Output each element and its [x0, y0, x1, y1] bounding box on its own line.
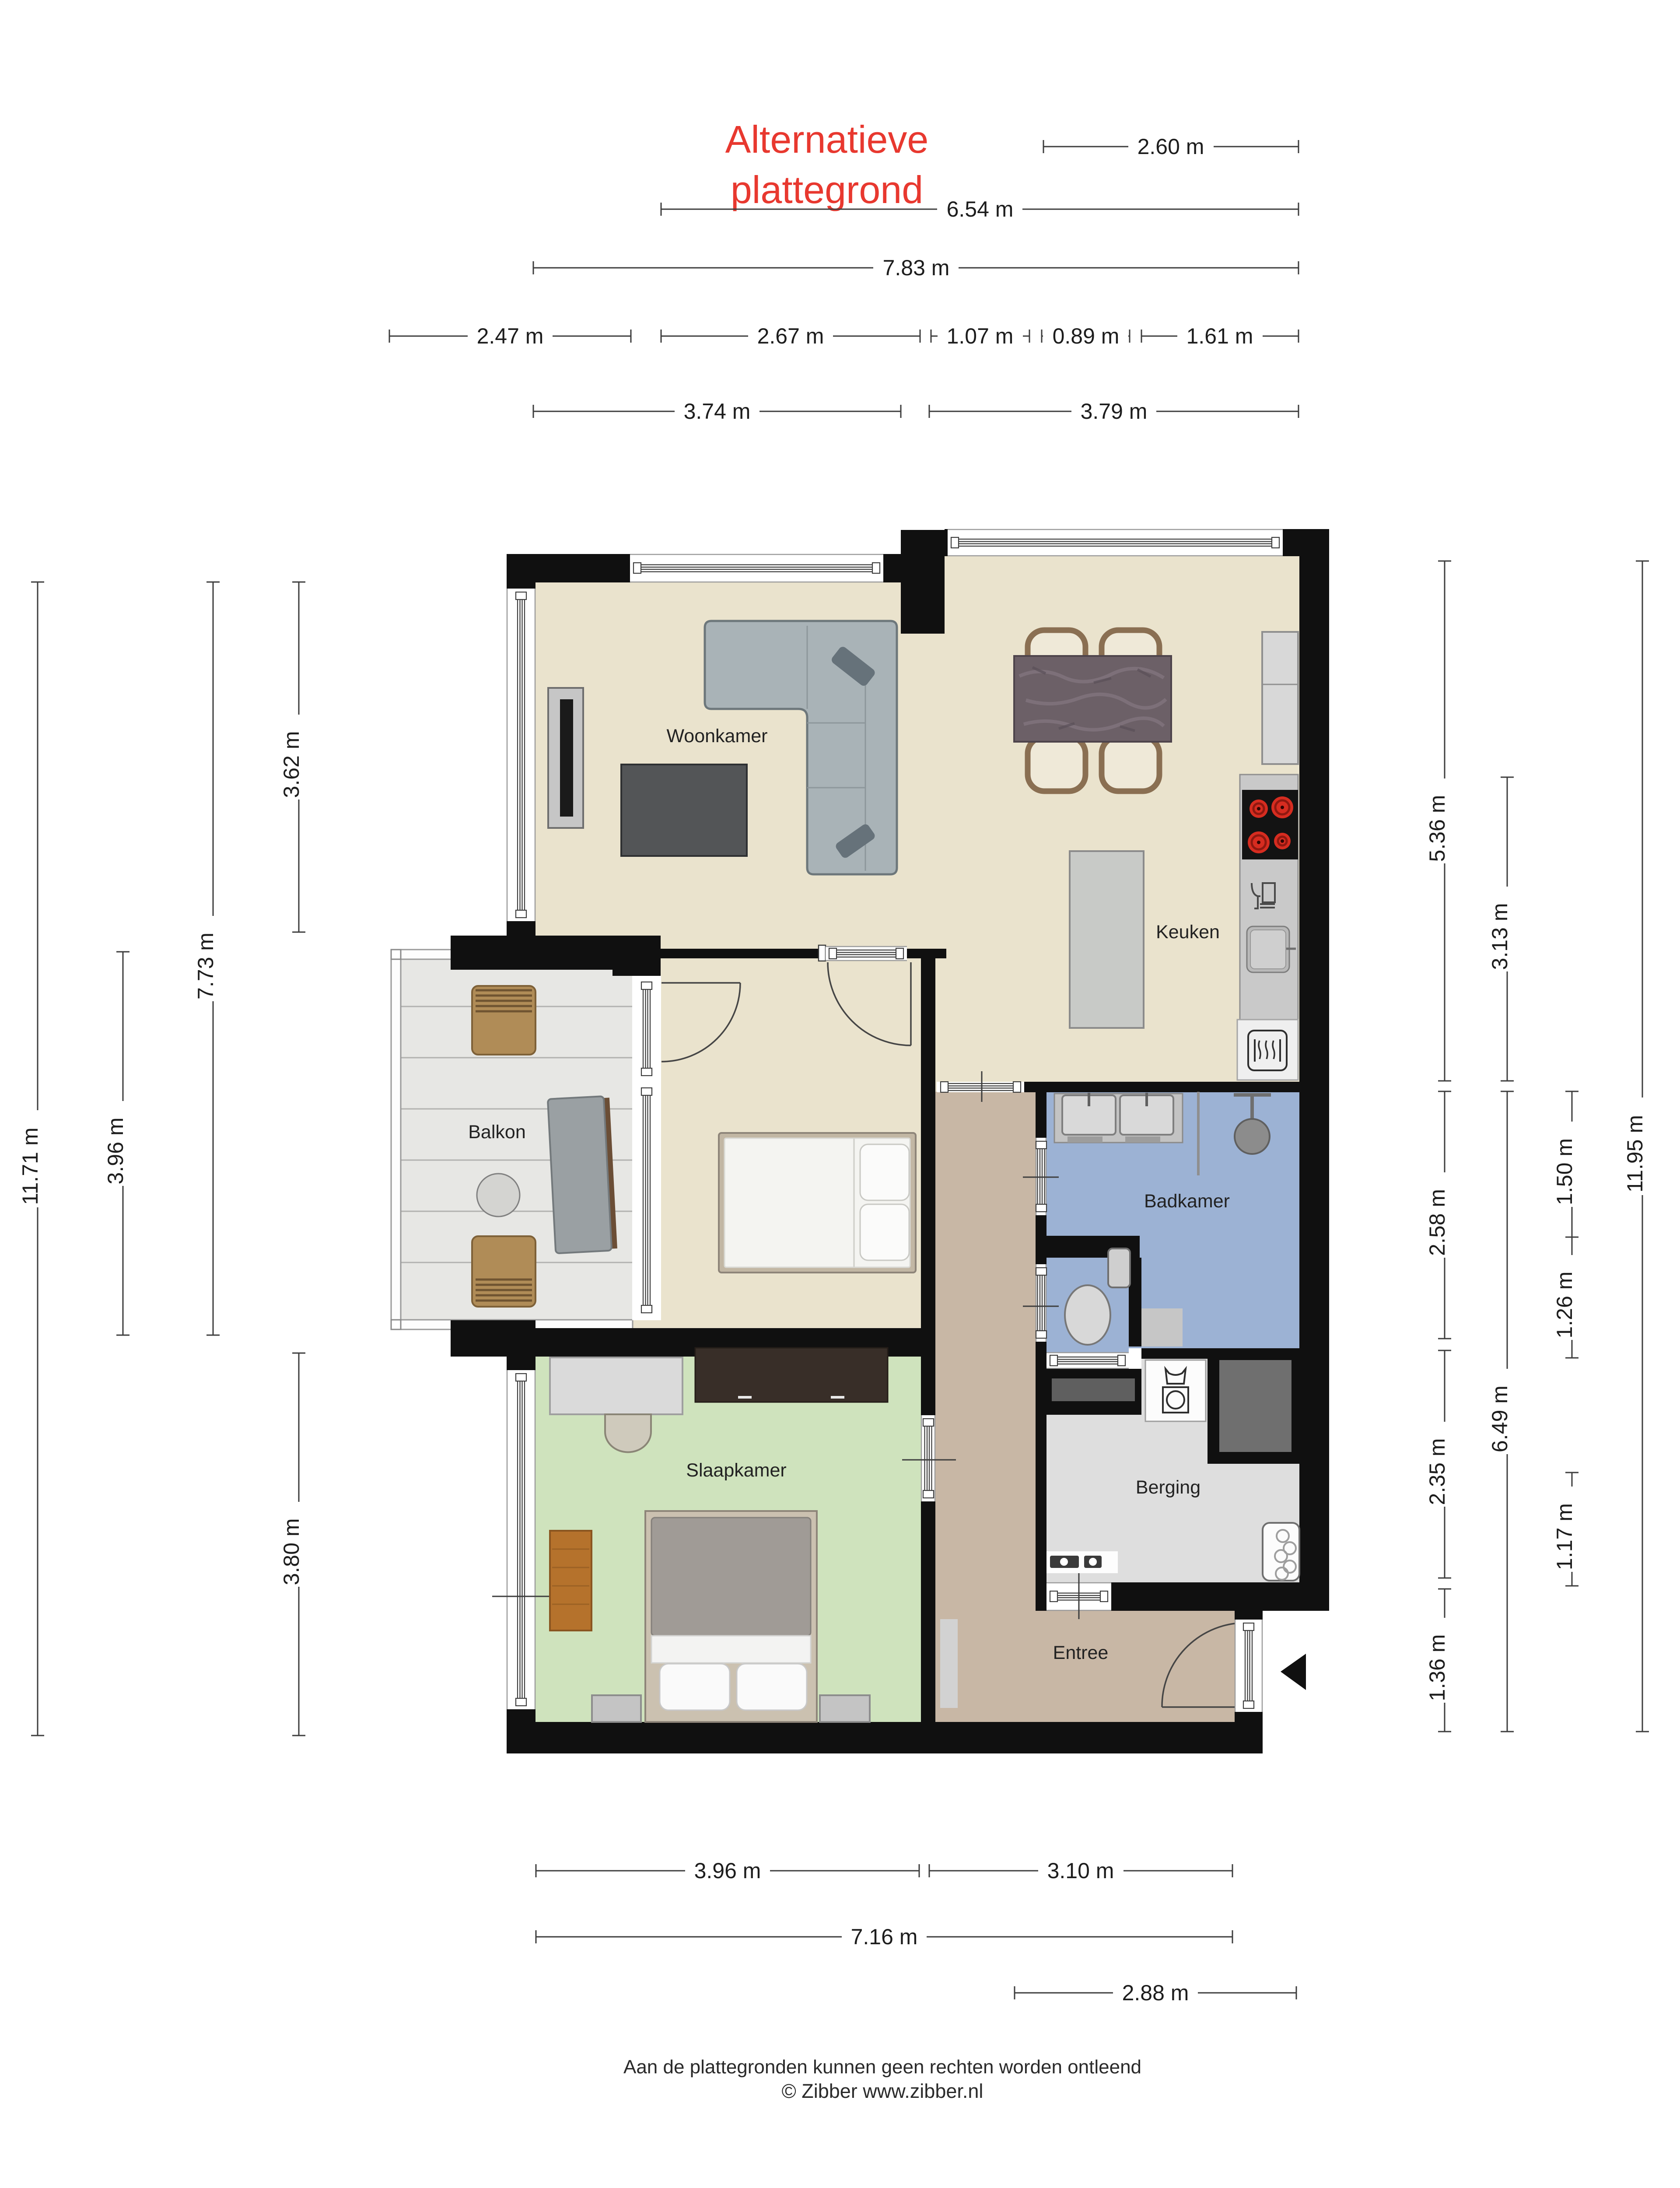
svg-text:3.79 m: 3.79 m [1081, 399, 1148, 424]
svg-text:1.61 m: 1.61 m [1186, 324, 1253, 348]
svg-text:7.83 m: 7.83 m [883, 256, 950, 280]
svg-text:2.35 m: 2.35 m [1425, 1438, 1449, 1505]
svg-text:Entree: Entree [1053, 1642, 1109, 1663]
svg-text:7.73 m: 7.73 m [193, 933, 218, 999]
svg-text:2.88 m: 2.88 m [1122, 1981, 1189, 2005]
svg-text:0.89 m: 0.89 m [1053, 324, 1120, 348]
svg-text:1.17 m: 1.17 m [1552, 1503, 1577, 1570]
svg-text:Berging: Berging [1136, 1477, 1200, 1498]
svg-text:3.13 m: 3.13 m [1487, 903, 1512, 970]
svg-text:3.62 m: 3.62 m [279, 731, 304, 798]
svg-text:© Zibber www.zibber.nl: © Zibber www.zibber.nl [782, 2080, 983, 2102]
svg-text:2.47 m: 2.47 m [477, 324, 544, 348]
svg-text:Aan de plattegronden kunnen ge: Aan de plattegronden kunnen geen rechten… [623, 2056, 1141, 2078]
svg-text:6.54 m: 6.54 m [947, 197, 1014, 221]
svg-text:Balkon: Balkon [468, 1122, 525, 1143]
svg-text:1.36 m: 1.36 m [1425, 1634, 1449, 1701]
svg-text:3.10 m: 3.10 m [1047, 1858, 1114, 1883]
svg-text:plattegrond: plattegrond [731, 168, 923, 211]
svg-text:3.74 m: 3.74 m [684, 399, 751, 424]
svg-text:5.36 m: 5.36 m [1425, 795, 1449, 862]
svg-text:Keuken: Keuken [1156, 922, 1220, 943]
svg-text:2.58 m: 2.58 m [1425, 1189, 1449, 1256]
svg-text:Badkamer: Badkamer [1144, 1191, 1230, 1212]
svg-text:1.50 m: 1.50 m [1552, 1138, 1577, 1205]
svg-text:2.60 m: 2.60 m [1137, 134, 1204, 159]
svg-text:3.80 m: 3.80 m [279, 1518, 304, 1585]
svg-text:11.71 m: 11.71 m [18, 1128, 42, 1205]
svg-text:2.67 m: 2.67 m [757, 324, 824, 348]
svg-text:3.96 m: 3.96 m [694, 1858, 761, 1883]
svg-text:11.95 m: 11.95 m [1623, 1115, 1647, 1192]
svg-text:1.26 m: 1.26 m [1552, 1272, 1577, 1339]
svg-text:7.16 m: 7.16 m [851, 1925, 918, 1949]
svg-text:Slaapkamer: Slaapkamer [686, 1460, 786, 1481]
svg-text:Woonkamer: Woonkamer [666, 726, 767, 747]
svg-text:6.49 m: 6.49 m [1487, 1385, 1512, 1452]
svg-text:Alternatieve: Alternatieve [725, 118, 929, 161]
svg-text:1.07 m: 1.07 m [947, 324, 1014, 348]
svg-text:3.96 m: 3.96 m [103, 1118, 128, 1185]
